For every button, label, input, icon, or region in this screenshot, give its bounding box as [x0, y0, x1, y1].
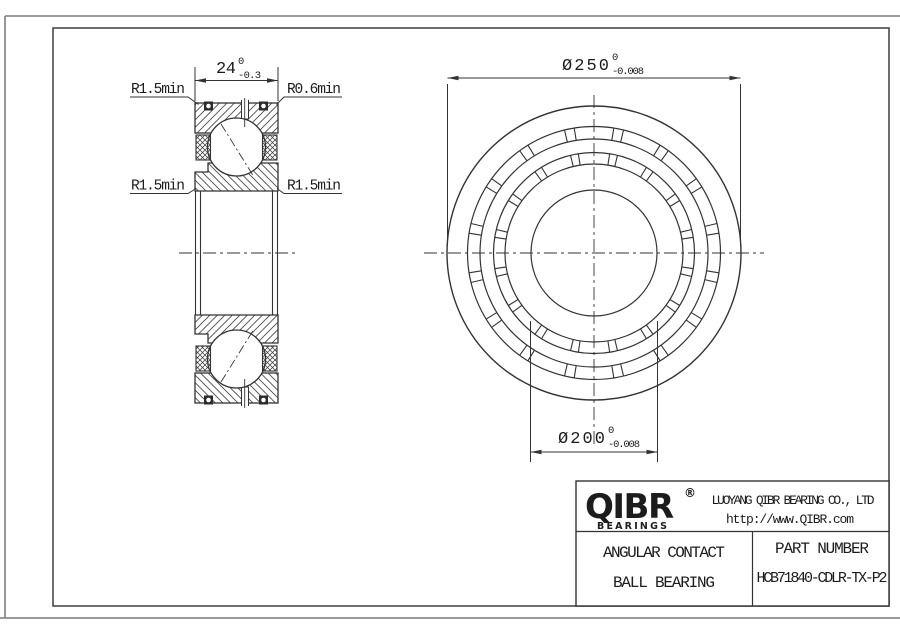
outer-dim-lower: -0.008	[612, 66, 644, 78]
cage-section-left	[196, 346, 211, 371]
leader-top-right	[277, 97, 343, 105]
width-dimension	[195, 67, 278, 101]
radius-label-top-right: R0.6min	[287, 82, 341, 98]
section-view: 24 0 -0.3 R1.5min R0.6min R1.5min R1.5mi…	[130, 56, 342, 408]
outer-dim-nominal: Ø250	[562, 57, 609, 76]
leader-top-left	[130, 97, 199, 105]
radius-label-bottom-right: R1.5min	[287, 179, 341, 195]
extension-lines	[195, 67, 278, 101]
company-name: LUOYANG QIBR BEARING CO., LTD	[712, 493, 875, 508]
registered-mark: ®	[684, 486, 696, 500]
ball-section	[208, 330, 266, 388]
part-number-label: PART NUMBER	[775, 540, 869, 558]
part-number-value: HCB71840-CDLR-TX-P2	[757, 570, 888, 587]
title-block: QIBR ® BEARINGS LUOYANG QIBR BEARING CO.…	[576, 481, 889, 606]
radius-label-top-left: R1.5min	[131, 82, 185, 98]
arrow-right	[267, 78, 278, 83]
product-name-line2: BALL BEARING	[613, 574, 715, 592]
width-dim-upper: 0	[238, 56, 244, 68]
arrow-left	[448, 76, 459, 81]
arrow-left	[531, 450, 542, 455]
product-name-line1: ANGULAR CONTACT	[603, 544, 725, 562]
ball-section	[208, 118, 266, 176]
section-top-half	[195, 98, 278, 191]
arrow-right	[647, 450, 658, 455]
seal-dot-left	[206, 104, 211, 109]
cage-section-right	[263, 346, 278, 371]
company-website: http://www.QIBR.com	[726, 512, 854, 527]
seal-dot-right	[261, 104, 266, 109]
bore-dim-nominal: Ø200	[558, 430, 605, 449]
seal-dot-left	[206, 398, 211, 403]
engineering-drawing: 24 0 -0.3 R1.5min R0.6min R1.5min R1.5mi…	[0, 0, 900, 636]
brand-tagline: BEARINGS	[597, 521, 669, 532]
section-bottom-half	[195, 315, 278, 408]
outer-dim-upper: 0	[612, 52, 618, 64]
bore-dim-upper: 0	[608, 425, 614, 437]
arrow-left	[195, 78, 206, 83]
width-dim-lower: -0.3	[238, 70, 261, 82]
radius-label-bottom-left: R1.5min	[131, 179, 185, 195]
cage-section-left	[196, 135, 211, 160]
front-view: Ø250 0 -0.008 Ø200 0 -0.008	[424, 52, 764, 462]
width-dim-nominal: 24	[216, 60, 236, 79]
cage-section-right	[263, 135, 278, 160]
bore-dim-lower: -0.008	[608, 439, 640, 451]
arrow-right	[730, 76, 741, 81]
seal-dot-right	[261, 398, 266, 403]
drawing-sheet: 24 0 -0.3 R1.5min R0.6min R1.5min R1.5mi…	[0, 0, 900, 636]
